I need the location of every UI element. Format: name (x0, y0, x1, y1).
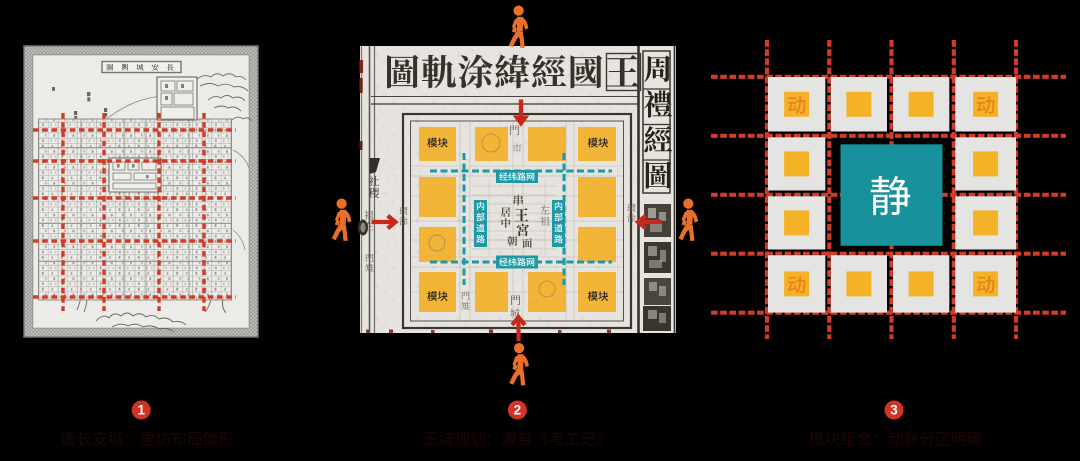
svg-text:2: 2 (514, 403, 522, 418)
svg-text:1: 1 (137, 403, 145, 418)
svg-text:3: 3 (890, 403, 898, 418)
